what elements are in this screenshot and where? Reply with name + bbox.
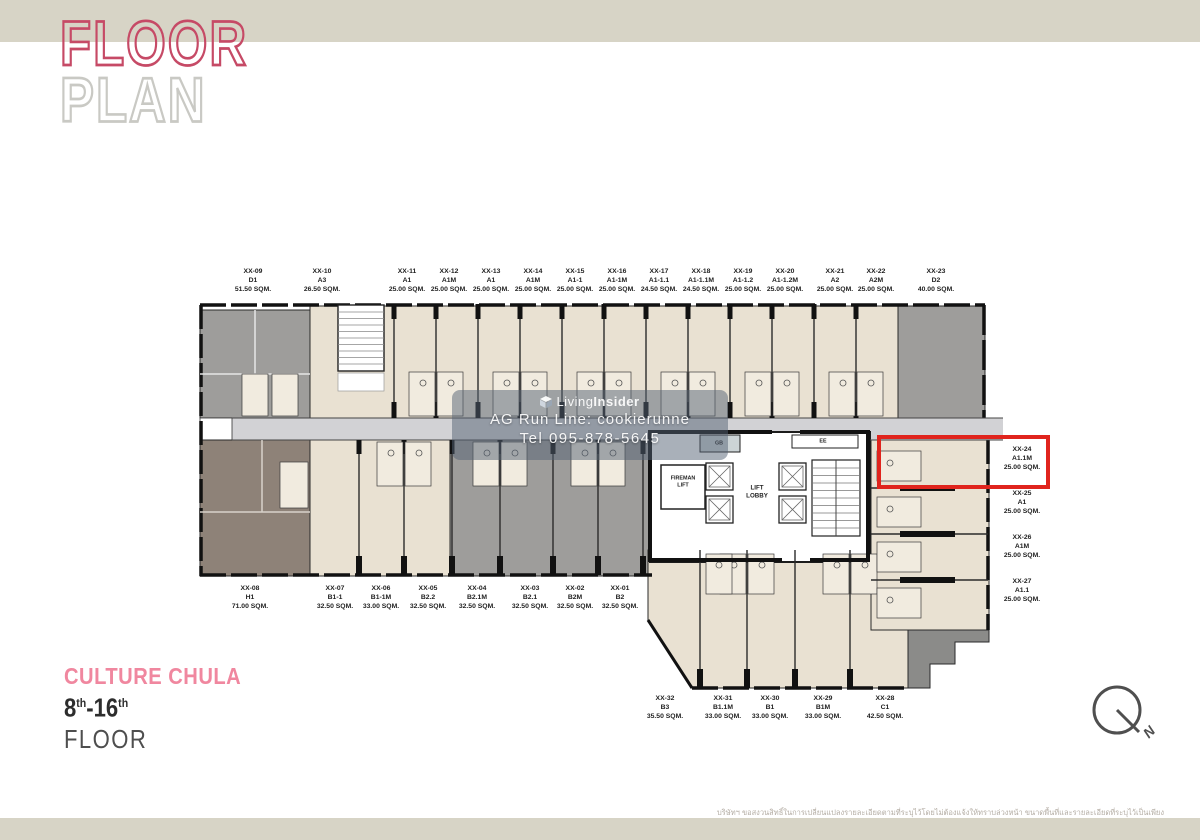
page-background: FLOOR PLAN [0,42,1200,818]
floor-word: FLOOR [64,724,241,754]
floor-range: 8th-16th [64,693,241,723]
bottom-band [0,818,1200,840]
living-insider-logo-icon [540,396,552,408]
floor-plan-page: FLOOR PLAN [0,0,1200,840]
watermark-tel: Tel 095-878-5645 [452,430,728,447]
svg-text:N: N [1140,722,1159,741]
watermark-brand: LivingInsider [452,394,728,409]
north-compass-icon: N [1080,674,1170,758]
highlight-box-xx24 [877,435,1050,489]
watermark: LivingInsider AG Run Line: cookierunne T… [452,390,728,460]
project-name: CULTURE CHULA [64,664,241,691]
project-footer: CULTURE CHULA 8th-16th FLOOR [64,664,241,755]
watermark-runline: AG Run Line: cookierunne [452,411,728,428]
